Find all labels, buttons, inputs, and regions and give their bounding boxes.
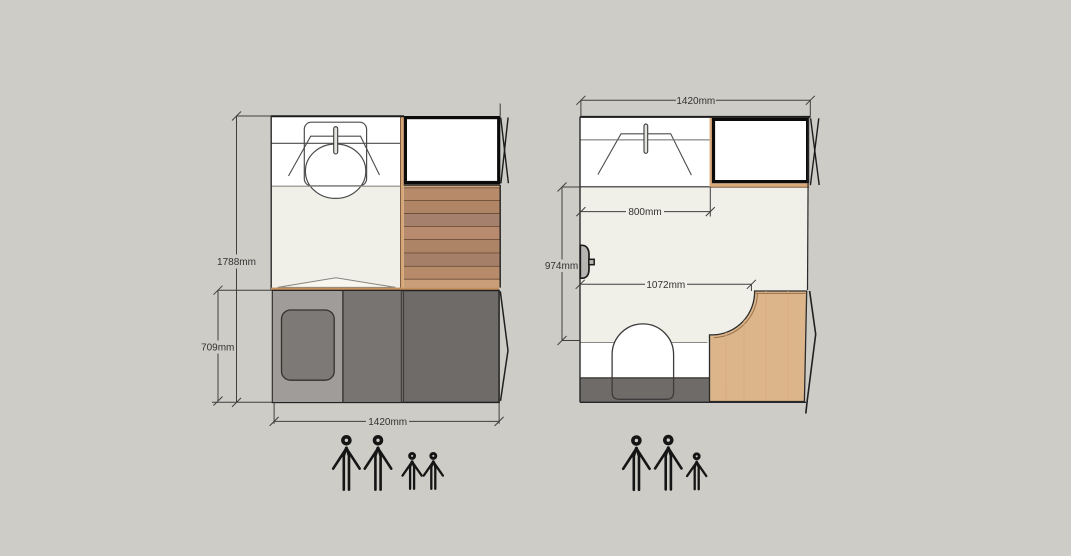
svg-text:1072mm: 1072mm — [646, 280, 685, 291]
svg-text:1788mm: 1788mm — [217, 257, 256, 268]
svg-text:1420mm: 1420mm — [368, 417, 407, 428]
svg-text:709mm: 709mm — [201, 343, 234, 354]
svg-text:1420mm: 1420mm — [676, 96, 715, 107]
svg-text:974mm: 974mm — [545, 261, 578, 272]
svg-text:800mm: 800mm — [628, 207, 661, 218]
